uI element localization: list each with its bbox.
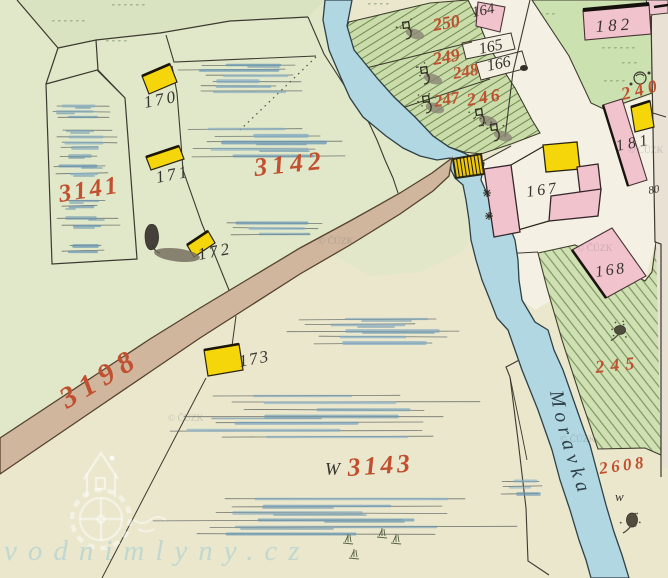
svg-text:© ČÚZK: © ČÚZK: [560, 433, 596, 445]
svg-text:© ČÚZK: © ČÚZK: [318, 235, 354, 247]
svg-text:3143: 3143: [345, 448, 414, 482]
svg-text:W: W: [325, 459, 342, 479]
svg-text:w: w: [615, 489, 624, 504]
svg-text:© ČÚZK: © ČÚZK: [577, 242, 613, 254]
svg-text:182: 182: [595, 14, 634, 36]
svg-text:© ČÚZK: © ČÚZK: [628, 144, 664, 156]
svg-text:© ČÚZK: © ČÚZK: [168, 412, 204, 424]
svg-text:vodnimlyny.cz: vodnimlyny.cz: [4, 535, 310, 567]
